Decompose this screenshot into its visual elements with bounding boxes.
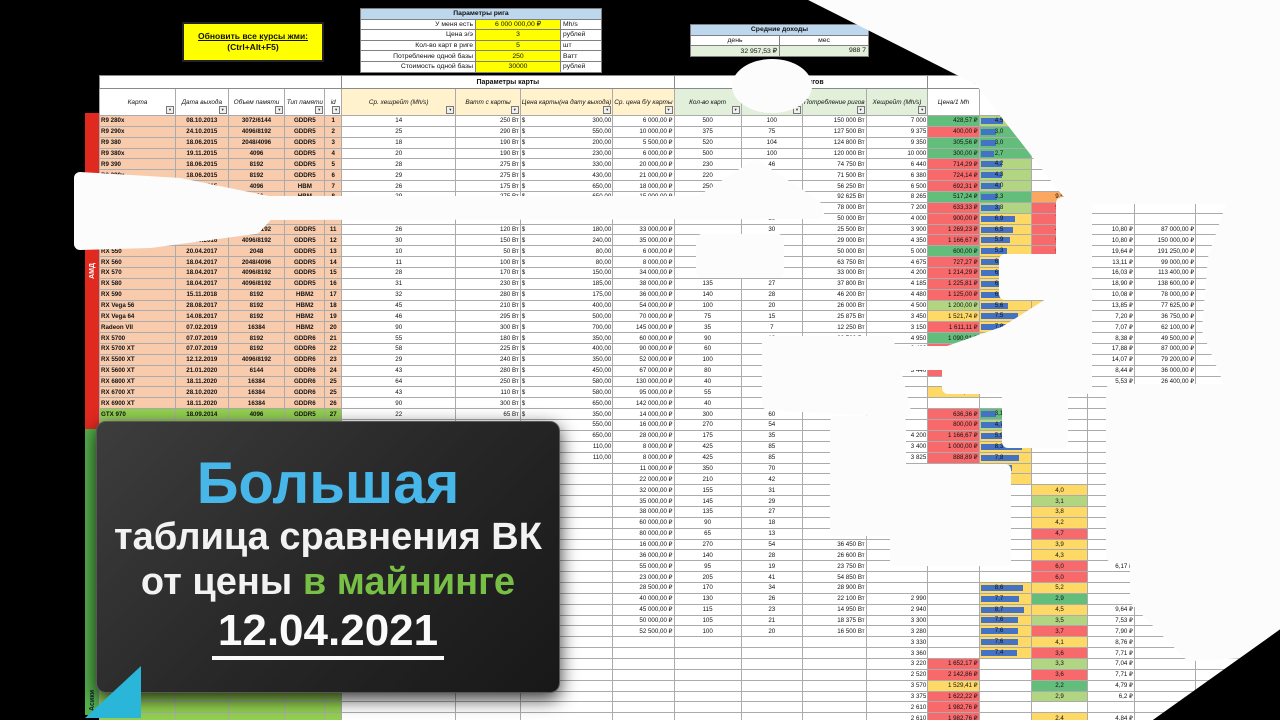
cell[interactable]: 4,84 ₽ <box>1087 713 1134 720</box>
cell[interactable]: 4096/8192 <box>228 224 285 235</box>
cell[interactable]: 916,67 ₽ <box>928 463 979 474</box>
cell[interactable]: 692,31 ₽ <box>928 181 979 192</box>
cell[interactable]: 1 032,26 ₽ <box>928 485 979 496</box>
cell[interactable]: 80 000,00 ₽ <box>613 528 674 539</box>
cell[interactable]: GDDR6 <box>285 354 325 365</box>
cell[interactable]: 9,3 <box>1032 257 1088 268</box>
cell[interactable]: 6144 <box>228 365 285 376</box>
cell[interactable] <box>342 213 456 224</box>
cell[interactable] <box>1196 170 1280 181</box>
cell[interactable]: 970 5 <box>1196 257 1280 268</box>
cell[interactable] <box>228 702 285 713</box>
cell[interactable]: 2 610 <box>866 702 928 713</box>
cell[interactable] <box>1087 213 1134 224</box>
cell[interactable] <box>1134 528 1195 539</box>
cell[interactable]: 25 <box>342 126 456 137</box>
cell[interactable] <box>1134 648 1195 659</box>
cell[interactable]: 600,00 ₽ <box>928 246 979 257</box>
cell[interactable]: R9 390x <box>100 170 176 181</box>
cell[interactable]: 16,03 ₽ <box>1087 268 1134 279</box>
cell[interactable]: 4,7 <box>979 420 1032 431</box>
cell[interactable]: 67 000,00 ₽ <box>613 365 674 376</box>
column-header[interactable]: Дата выхода▾ <box>175 89 228 116</box>
cell[interactable]: 3 280 <box>866 626 928 637</box>
cell[interactable]: 270 <box>674 539 741 550</box>
cell[interactable] <box>928 539 979 550</box>
cell[interactable]: 42 <box>741 474 802 485</box>
cell[interactable]: 1 198 401,71 ₽ <box>1196 322 1280 333</box>
cell[interactable]: 7,71 ₽ <box>1087 648 1134 659</box>
cell[interactable]: 3 570 <box>866 680 928 691</box>
cell[interactable] <box>1196 582 1280 593</box>
cell[interactable] <box>1134 582 1195 593</box>
cell[interactable] <box>1196 485 1280 496</box>
cell[interactable]: 46 <box>741 159 802 170</box>
cell[interactable]: 28.10.2020 <box>175 387 228 398</box>
cell[interactable]: $550,00 <box>520 126 613 137</box>
cell[interactable]: 3,6 <box>1032 648 1088 659</box>
cell[interactable] <box>741 691 802 702</box>
cell[interactable]: 1 000,00 ₽ <box>928 441 979 452</box>
cell[interactable]: 26 <box>325 398 342 409</box>
cell[interactable] <box>928 626 979 637</box>
cell[interactable]: 3 375 <box>866 691 928 702</box>
cell[interactable]: 120 Вт <box>456 224 520 235</box>
cell[interactable]: 24.06.2015 <box>175 202 228 213</box>
cell[interactable]: 25 <box>325 387 342 398</box>
cell[interactable]: 17 <box>325 289 342 300</box>
column-header[interactable]: ROI (мес. <box>979 89 1032 116</box>
cell[interactable] <box>866 474 928 485</box>
cell[interactable]: RX Vega 56 <box>100 300 176 311</box>
cell[interactable]: $350,00 <box>520 354 613 365</box>
cell[interactable] <box>228 713 285 720</box>
cell[interactable] <box>741 658 802 669</box>
cell[interactable]: 75 <box>674 311 741 322</box>
cell[interactable]: 8192 <box>228 159 285 170</box>
cell[interactable]: 4 480 <box>866 289 928 300</box>
cell[interactable]: 20 <box>741 300 802 311</box>
cell[interactable]: 3 440 <box>866 365 928 376</box>
cell[interactable]: 6,0 <box>1032 561 1088 572</box>
cell[interactable] <box>456 702 520 713</box>
cell[interactable] <box>1196 398 1280 409</box>
cell[interactable] <box>802 648 866 659</box>
cell[interactable] <box>1032 148 1088 159</box>
cell[interactable]: RX 5700 <box>100 333 176 344</box>
cell[interactable]: 1 982,76 ₽ <box>928 702 979 713</box>
cell[interactable] <box>1087 148 1134 159</box>
cell[interactable]: 1 652,17 ₽ <box>928 658 979 669</box>
cell[interactable]: 6,0 <box>979 257 1032 268</box>
cell[interactable]: 8,3 <box>979 441 1032 452</box>
column-header[interactable]: Карта▾ <box>100 89 176 116</box>
cell[interactable]: 2 900 <box>866 354 928 365</box>
cell[interactable] <box>1196 116 1280 127</box>
cell[interactable]: 25 650 Вт <box>802 506 866 517</box>
cell[interactable] <box>1196 430 1280 441</box>
cell[interactable]: 24.10.2015 <box>175 126 228 137</box>
cell[interactable]: 5,0 <box>1032 246 1088 257</box>
cell[interactable] <box>1196 463 1280 474</box>
cell[interactable]: 50 000,00 ₽ <box>613 615 674 626</box>
cell[interactable]: 90 <box>342 322 456 333</box>
cell[interactable]: 21.01.2020 <box>175 365 228 376</box>
cell[interactable]: 44 <box>741 170 802 181</box>
cell[interactable]: 3 300 <box>866 615 928 626</box>
cell[interactable]: 3 825 <box>866 452 928 463</box>
cell[interactable] <box>100 224 176 235</box>
cell[interactable]: 6,0 <box>1032 572 1088 583</box>
cell[interactable]: $180,00 <box>520 224 613 235</box>
cell[interactable]: 40 250 Вт <box>802 463 866 474</box>
cell[interactable]: 4,6 <box>1032 224 1088 235</box>
cell[interactable]: 50 000 Вт <box>802 213 866 224</box>
cell[interactable]: 2048/4096 <box>228 257 285 268</box>
cell[interactable]: 1 200,00 ₽ <box>928 300 979 311</box>
cell[interactable]: 4096/8192 <box>228 268 285 279</box>
cell[interactable]: 52 500,00 ₽ <box>613 626 674 637</box>
cell[interactable]: 08.10.2013 <box>175 116 228 127</box>
cell[interactable] <box>866 517 928 528</box>
cell[interactable]: 8,38 ₽ <box>1087 333 1134 344</box>
cell[interactable]: $400,00 <box>520 344 613 355</box>
cell[interactable]: 23 <box>325 354 342 365</box>
cell[interactable] <box>1032 702 1088 713</box>
cell[interactable]: 4 000 <box>866 213 928 224</box>
column-header[interactable]: Тип памяти▾ <box>285 89 325 116</box>
cell[interactable]: 1 622,22 ₽ <box>928 691 979 702</box>
cell[interactable]: 90 <box>674 517 741 528</box>
cell[interactable]: 520 <box>674 137 741 148</box>
cell[interactable]: 90 000,00 ₽ <box>613 344 674 355</box>
cell[interactable]: 52 000,00 ₽ <box>613 354 674 365</box>
cell[interactable]: 22 <box>342 409 456 420</box>
cell[interactable]: 3 480 <box>866 344 928 355</box>
cell[interactable] <box>175 213 228 224</box>
cell[interactable] <box>1196 148 1280 159</box>
cell[interactable]: 3,3 <box>1032 322 1088 333</box>
cell[interactable] <box>1032 441 1088 452</box>
cell[interactable] <box>1196 159 1280 170</box>
cell[interactable]: 2 520 <box>866 669 928 680</box>
cell[interactable] <box>979 561 1032 572</box>
column-header[interactable]: Цена/1 Mh <box>928 89 979 116</box>
cell[interactable]: 4096/8192 <box>228 126 285 137</box>
cell[interactable] <box>802 691 866 702</box>
cell[interactable]: 10 <box>342 246 456 257</box>
cell[interactable]: 210 Вт <box>456 300 520 311</box>
cell[interactable] <box>1196 126 1280 137</box>
cell[interactable] <box>979 691 1032 702</box>
cell[interactable]: 20 <box>741 354 802 365</box>
refresh-rates-button[interactable]: Обновить все курсы жми: (Ctrl+Alt+F5) <box>182 22 324 62</box>
filter-dropdown-icon[interactable]: ▾ <box>332 106 340 114</box>
cell[interactable]: 140 <box>674 289 741 300</box>
cell[interactable] <box>1196 604 1280 615</box>
cell[interactable]: 2048 <box>228 246 285 257</box>
cell[interactable]: 55 <box>1134 604 1195 615</box>
cell[interactable] <box>1134 506 1195 517</box>
cell[interactable]: RX 570 <box>100 268 176 279</box>
cell[interactable]: RX 6700 XT <box>100 387 176 398</box>
cell[interactable] <box>928 615 979 626</box>
cell[interactable]: RX 5500 XT <box>100 354 176 365</box>
cell[interactable]: 22 100 Вт <box>802 593 866 604</box>
cell[interactable] <box>928 572 979 583</box>
cell[interactable] <box>866 485 928 496</box>
cell[interactable] <box>866 496 928 507</box>
cell[interactable] <box>866 550 928 561</box>
cell[interactable] <box>928 376 979 387</box>
cell[interactable]: $350,00 <box>520 409 613 420</box>
cell[interactable] <box>1032 387 1088 398</box>
cell[interactable]: GDDR5 <box>285 170 325 181</box>
cell[interactable]: 7,5 <box>979 311 1032 322</box>
cell[interactable]: 17,88 ₽ <box>1087 344 1134 355</box>
cell[interactable] <box>802 669 866 680</box>
rig-param-value[interactable]: 250 <box>476 51 561 62</box>
cell[interactable]: 888,89 ₽ <box>928 452 979 463</box>
cell[interactable]: 3 330 <box>866 637 928 648</box>
cell[interactable] <box>1087 593 1134 604</box>
cell[interactable]: 1 125,00 ₽ <box>928 289 979 300</box>
cell[interactable]: 6,38 ₽ <box>1087 398 1134 409</box>
cell[interactable]: 5 500,00 ₽ <box>613 137 674 148</box>
cell[interactable] <box>1087 202 1134 213</box>
cell[interactable]: 240 <box>674 202 741 213</box>
cell[interactable]: 6,3 <box>979 463 1032 474</box>
filter-dropdown-icon[interactable]: ▾ <box>315 106 323 114</box>
cell[interactable]: 18 375 Вт <box>802 615 866 626</box>
cell[interactable]: 28 <box>741 550 802 561</box>
cell[interactable]: $185,00 <box>520 278 613 289</box>
cell[interactable]: 6,5 <box>979 224 1032 235</box>
cell[interactable] <box>866 463 928 474</box>
cell[interactable]: $650,00 <box>520 181 613 192</box>
cell[interactable]: 18 <box>342 137 456 148</box>
cell[interactable]: 6 000,00 ₽ <box>613 148 674 159</box>
cell[interactable]: 99 000,00 ₽ <box>1134 257 1195 268</box>
cell[interactable]: R9 390 <box>100 159 176 170</box>
cell[interactable] <box>979 713 1032 720</box>
cell[interactable] <box>613 702 674 713</box>
cell[interactable]: 180 Вт <box>456 333 520 344</box>
filter-dropdown-icon[interactable]: ▾ <box>857 106 865 114</box>
cell[interactable]: 100 Вт <box>456 257 520 268</box>
cell[interactable]: 4,3 <box>979 170 1032 181</box>
cell[interactable]: 4096 <box>228 202 285 213</box>
cell[interactable]: 4,0 <box>979 181 1032 192</box>
cell[interactable]: $300,00 <box>520 116 613 127</box>
cell[interactable] <box>1196 550 1280 561</box>
column-header[interactable] <box>1032 89 1088 116</box>
cell[interactable] <box>1134 452 1195 463</box>
cell[interactable] <box>1087 170 1134 181</box>
cell[interactable] <box>802 430 866 441</box>
cell[interactable]: 7 200 <box>866 202 928 213</box>
cell[interactable] <box>928 604 979 615</box>
cell[interactable] <box>1087 181 1134 192</box>
cell[interactable]: 75 <box>741 126 802 137</box>
cell[interactable]: 2,7 <box>979 148 1032 159</box>
cell[interactable] <box>928 506 979 517</box>
cell[interactable]: 145 <box>674 496 741 507</box>
cell[interactable]: 20.04.2017 <box>175 246 228 257</box>
cell[interactable]: 55 <box>674 387 741 398</box>
cell[interactable]: $150,00 <box>520 268 613 279</box>
cell[interactable]: 31 <box>342 278 456 289</box>
cell[interactable]: 220 <box>674 170 741 181</box>
cell[interactable] <box>802 637 866 648</box>
cell[interactable]: 21 750 Вт <box>802 496 866 507</box>
cell[interactable]: GDDR6 <box>285 333 325 344</box>
cell[interactable]: 90 <box>342 398 456 409</box>
cell[interactable]: 103 500,00 ₽ <box>1134 398 1195 409</box>
cell[interactable]: 636,36 ₽ <box>928 409 979 420</box>
cell[interactable] <box>613 680 674 691</box>
cell[interactable]: 4096 <box>228 148 285 159</box>
column-header[interactable]: Потребление ригов▾ <box>802 89 866 116</box>
cell[interactable]: 4,0 <box>1032 485 1088 496</box>
cell[interactable] <box>741 637 802 648</box>
cell[interactable]: 35 <box>741 430 802 441</box>
cell[interactable] <box>1032 452 1088 463</box>
cell[interactable]: 46 200 Вт <box>802 289 866 300</box>
cell[interactable]: 1 166,67 ₽ <box>928 235 979 246</box>
column-header[interactable]: Ср. хешрейт (Mh/s)▾ <box>342 89 456 116</box>
cell[interactable] <box>613 648 674 659</box>
cell[interactable] <box>1134 550 1195 561</box>
cell[interactable] <box>1196 213 1280 224</box>
cell[interactable] <box>1134 485 1195 496</box>
cell[interactable]: 5,0 <box>979 474 1032 485</box>
cell[interactable]: GDDR5 <box>285 257 325 268</box>
cell[interactable]: 9 <box>979 354 1032 365</box>
cell[interactable]: GDDR5 <box>285 159 325 170</box>
cell[interactable]: 32 000,00 ₽ <box>613 485 674 496</box>
cell[interactable]: GDDR5 <box>285 224 325 235</box>
cell[interactable]: 1 577,78 ₽ <box>928 387 979 398</box>
cell[interactable] <box>613 213 674 224</box>
cell[interactable] <box>1134 126 1195 137</box>
cell[interactable] <box>979 365 1032 376</box>
cell[interactable]: 4,7 <box>1032 300 1088 311</box>
filter-dropdown-icon[interactable]: ▾ <box>918 106 926 114</box>
cell[interactable]: 1 793,10 ₽ <box>928 354 979 365</box>
cell[interactable]: 23 750 Вт <box>802 561 866 572</box>
cell[interactable]: 4,79 ₽ <box>1087 680 1134 691</box>
cell[interactable]: 07.07.2019 <box>175 333 228 344</box>
cell[interactable]: 15 <box>741 311 802 322</box>
cell[interactable]: 175 Вт <box>456 181 520 192</box>
cell[interactable] <box>1134 148 1195 159</box>
cell[interactable]: 8 000,00 ₽ <box>613 441 674 452</box>
cell[interactable]: 100 <box>741 246 802 257</box>
cell[interactable]: GDDR5 <box>285 246 325 257</box>
cell[interactable]: 4,5 <box>1032 604 1088 615</box>
cell[interactable]: 17 225 Вт <box>802 528 866 539</box>
cell[interactable]: 2 990 <box>866 593 928 604</box>
cell[interactable]: 3,8 <box>1032 506 1088 517</box>
cell[interactable]: 1 166,67 ₽ <box>928 430 979 441</box>
cell[interactable] <box>1032 137 1088 148</box>
cell[interactable] <box>1196 420 1280 431</box>
cell[interactable] <box>1196 496 1280 507</box>
cell[interactable]: R9 380 <box>100 137 176 148</box>
cell[interactable] <box>1032 278 1088 289</box>
cell[interactable]: 16384 <box>228 322 285 333</box>
cell[interactable]: 18 <box>741 517 802 528</box>
cell[interactable] <box>928 637 979 648</box>
cell[interactable]: 43 <box>342 387 456 398</box>
cell[interactable] <box>1196 539 1280 550</box>
cell[interactable] <box>1134 593 1195 604</box>
cell[interactable] <box>1032 463 1088 474</box>
cell[interactable]: 95 <box>674 561 741 572</box>
cell[interactable]: 16384 <box>228 387 285 398</box>
cell[interactable]: 7 <box>741 322 802 333</box>
cell[interactable]: 85 <box>741 452 802 463</box>
cell[interactable]: 19 <box>741 561 802 572</box>
cell[interactable] <box>1196 192 1280 203</box>
cell[interactable]: 1 214,29 ₽ <box>928 268 979 279</box>
cell[interactable]: 25 500 Вт <box>802 224 866 235</box>
cell[interactable]: 4096/8192 <box>228 354 285 365</box>
cell[interactable]: 7,8 <box>979 322 1032 333</box>
cell[interactable]: 150 Вт <box>456 235 520 246</box>
cell[interactable]: 8192 <box>228 300 285 311</box>
cell[interactable]: 428,57 ₽ <box>928 116 979 127</box>
cell[interactable]: R9 380x <box>100 148 176 159</box>
cell[interactable] <box>1196 572 1280 583</box>
cell[interactable]: 63 750 Вт <box>802 257 866 268</box>
cell[interactable] <box>979 398 1032 409</box>
cell[interactable] <box>674 680 741 691</box>
cell[interactable] <box>100 235 176 246</box>
cell[interactable]: 796 7 <box>1196 354 1280 365</box>
cell[interactable]: 145 000,00 ₽ <box>613 322 674 333</box>
cell[interactable] <box>520 213 613 224</box>
cell[interactable]: 27.08.2015 <box>175 181 228 192</box>
cell[interactable]: 2 940 <box>866 604 928 615</box>
cell[interactable]: 42 000,00 ₽ <box>1134 387 1195 398</box>
cell[interactable]: 85 <box>741 257 802 268</box>
cell[interactable]: HBM2 <box>285 311 325 322</box>
cell[interactable] <box>866 420 928 431</box>
filter-dropdown-icon[interactable]: ▾ <box>793 106 801 114</box>
cell[interactable]: 19 000,00 ₽ <box>613 202 674 213</box>
cell[interactable] <box>613 691 674 702</box>
cell[interactable]: 18 000,00 ₽ <box>613 181 674 192</box>
cell[interactable]: 5,9 <box>979 430 1032 441</box>
cell[interactable] <box>674 658 741 669</box>
cell[interactable] <box>1196 474 1280 485</box>
cell[interactable] <box>674 637 741 648</box>
cell[interactable]: 3 220 <box>866 658 928 669</box>
cell[interactable]: 15 000,00 ₽ <box>613 192 674 203</box>
cell[interactable]: 54 000,00 ₽ <box>613 300 674 311</box>
cell[interactable] <box>802 658 866 669</box>
cell[interactable]: 4 350 <box>866 235 928 246</box>
cell[interactable] <box>1087 441 1134 452</box>
cell[interactable] <box>1134 202 1195 213</box>
cell[interactable] <box>1087 420 1134 431</box>
cell[interactable]: 4,3 <box>1032 550 1088 561</box>
cell[interactable]: 31 <box>741 485 802 496</box>
cell[interactable]: 8,6 <box>979 582 1032 593</box>
cell[interactable] <box>1032 181 1088 192</box>
